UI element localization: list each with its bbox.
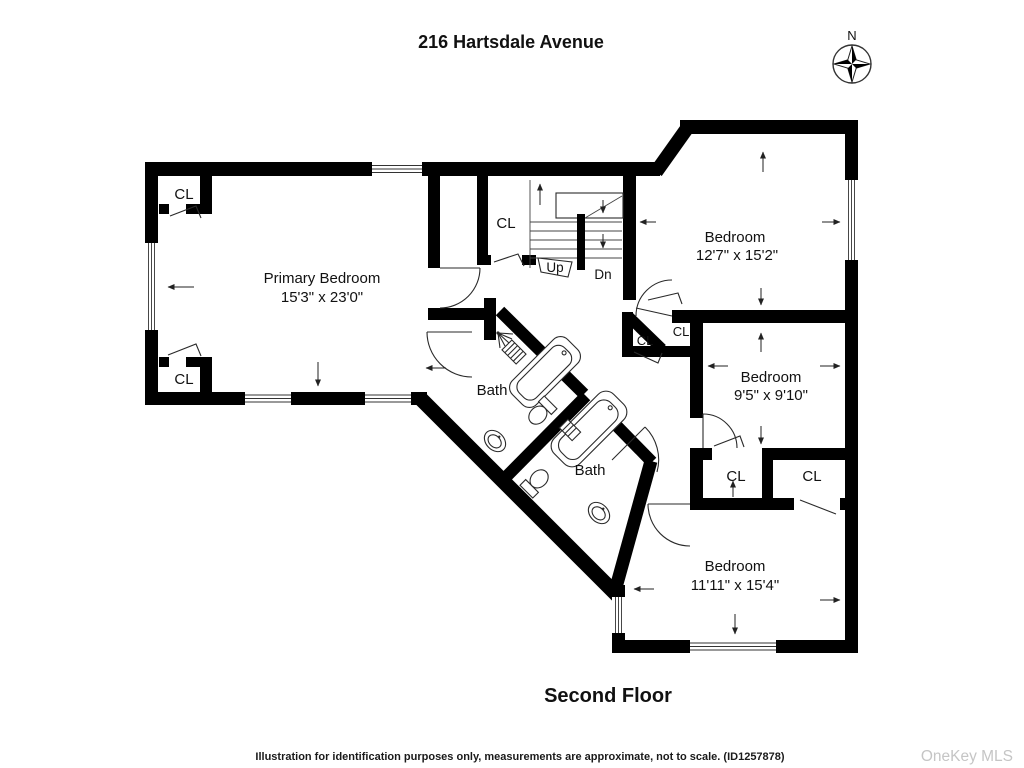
closet-label: CL [496, 215, 515, 232]
closet-bifold-door [714, 436, 744, 447]
door [440, 268, 480, 308]
vanity-hatch [502, 340, 526, 364]
window [845, 180, 858, 260]
floor-plan-canvas: 216 Hartsdale Avenue N [0, 0, 1024, 768]
closet-label: CL [174, 371, 193, 388]
primary-bedroom-dims: 15'3" x 23'0" [281, 289, 363, 306]
door [427, 332, 472, 377]
sink-icon [584, 498, 614, 528]
closet-label: CL [174, 186, 193, 203]
window [690, 640, 776, 653]
closet-bifold-door [800, 500, 836, 514]
bath-upper-label: Bath [477, 382, 508, 399]
staircase [530, 180, 623, 277]
stairs-down-label: Dn [594, 267, 611, 282]
bedroom-top-right-dims: 12'7" x 15'2" [696, 247, 778, 264]
closet-label: CL [673, 324, 690, 339]
window [365, 392, 411, 405]
bedroom-bottom-label: Bedroom [705, 558, 766, 575]
closet-bifold-door [648, 293, 682, 304]
closet-label: CL [726, 468, 745, 485]
door [648, 504, 690, 546]
bedroom-mid-right-label: Bedroom [741, 369, 802, 386]
closet-label: CL [637, 333, 654, 348]
watermark-text: OneKey MLS [921, 748, 1013, 765]
address-title: 216 Hartsdale Avenue [418, 32, 604, 52]
bedroom-top-right-label: Bedroom [705, 229, 766, 246]
door [703, 414, 737, 448]
floor-title: Second Floor [544, 685, 672, 707]
closet-bifold-door [494, 254, 524, 266]
window [145, 243, 158, 330]
disclaimer-text: Illustration for identification purposes… [255, 751, 784, 763]
sink-icon [480, 426, 510, 456]
bath-lower-label: Bath [575, 462, 606, 479]
compass-north-label: N [847, 28, 856, 43]
primary-bedroom-label: Primary Bedroom [264, 270, 381, 287]
bedroom-bottom-dims: 11'11" x 15'4" [691, 577, 779, 594]
door [636, 280, 672, 316]
closet-label: CL [802, 468, 821, 485]
window [372, 162, 422, 176]
closet-bifold-door [168, 344, 201, 356]
window [245, 392, 291, 405]
stairs-up-label: Up [546, 260, 563, 275]
window [612, 597, 625, 633]
compass-rose: N [833, 28, 871, 83]
room-labels: Primary Bedroom 15'3" x 23'0" Bedroom 12… [174, 186, 821, 594]
bedroom-mid-right-dims: 9'5" x 9'10" [734, 387, 808, 404]
